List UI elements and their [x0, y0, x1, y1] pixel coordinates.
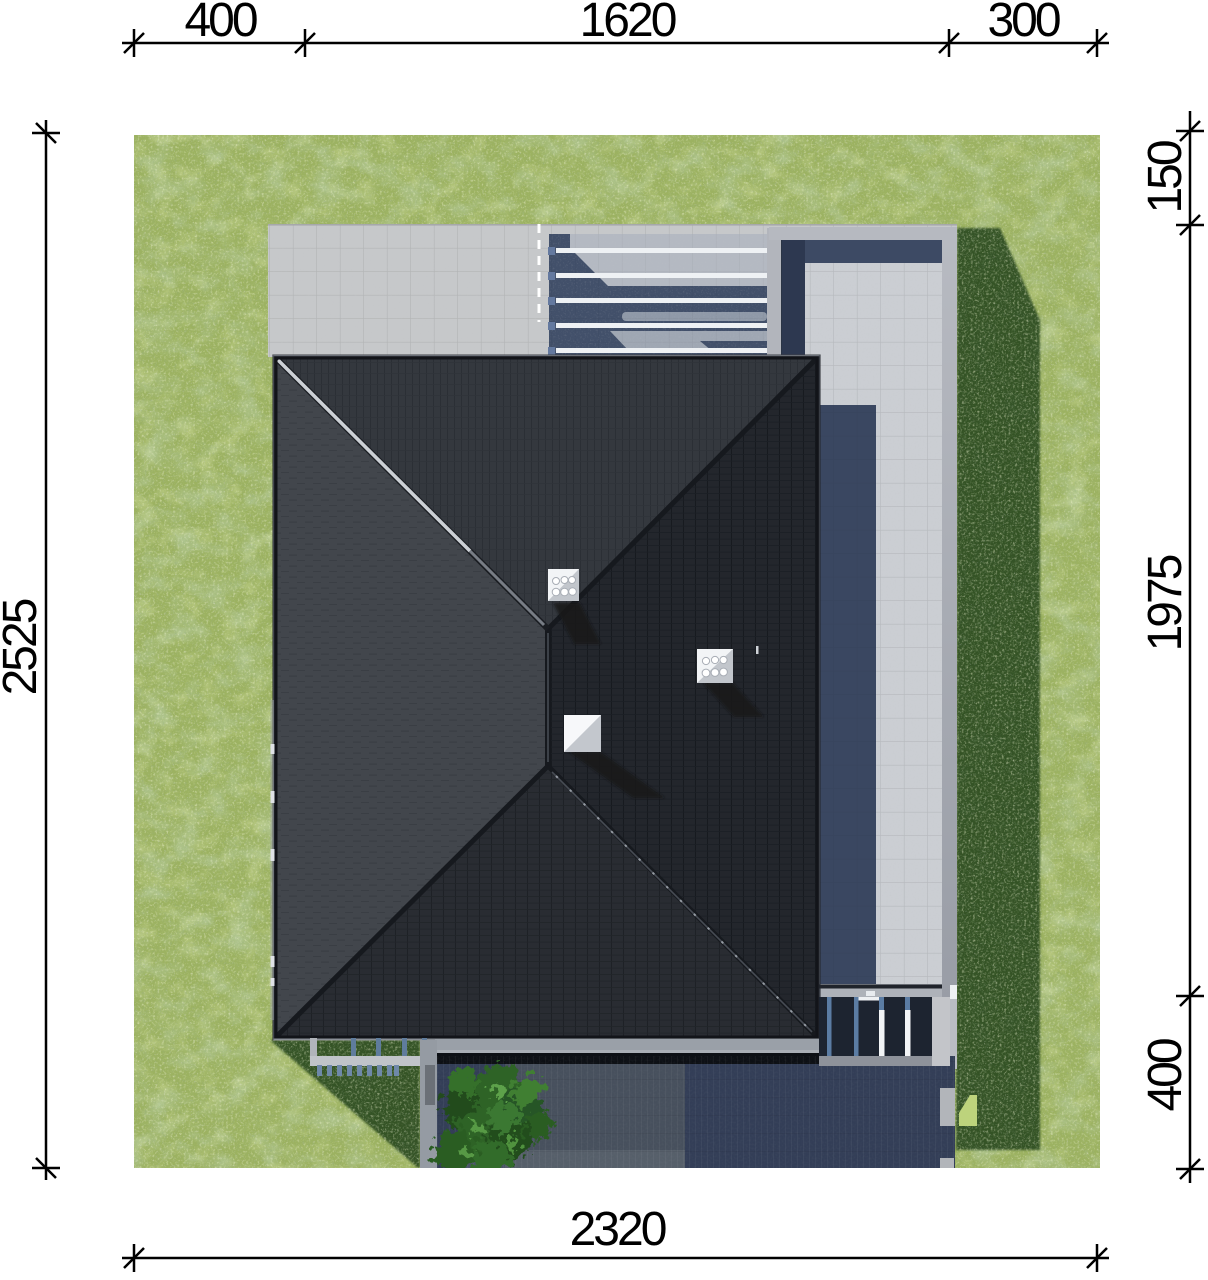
- svg-text:400: 400: [1139, 1039, 1192, 1111]
- svg-text:300: 300: [987, 0, 1059, 47]
- svg-text:1620: 1620: [580, 0, 676, 47]
- svg-text:2525: 2525: [0, 599, 47, 695]
- svg-text:150: 150: [1139, 141, 1192, 213]
- svg-text:400: 400: [184, 0, 256, 47]
- svg-text:2320: 2320: [570, 1203, 666, 1256]
- svg-text:1975: 1975: [1139, 555, 1192, 651]
